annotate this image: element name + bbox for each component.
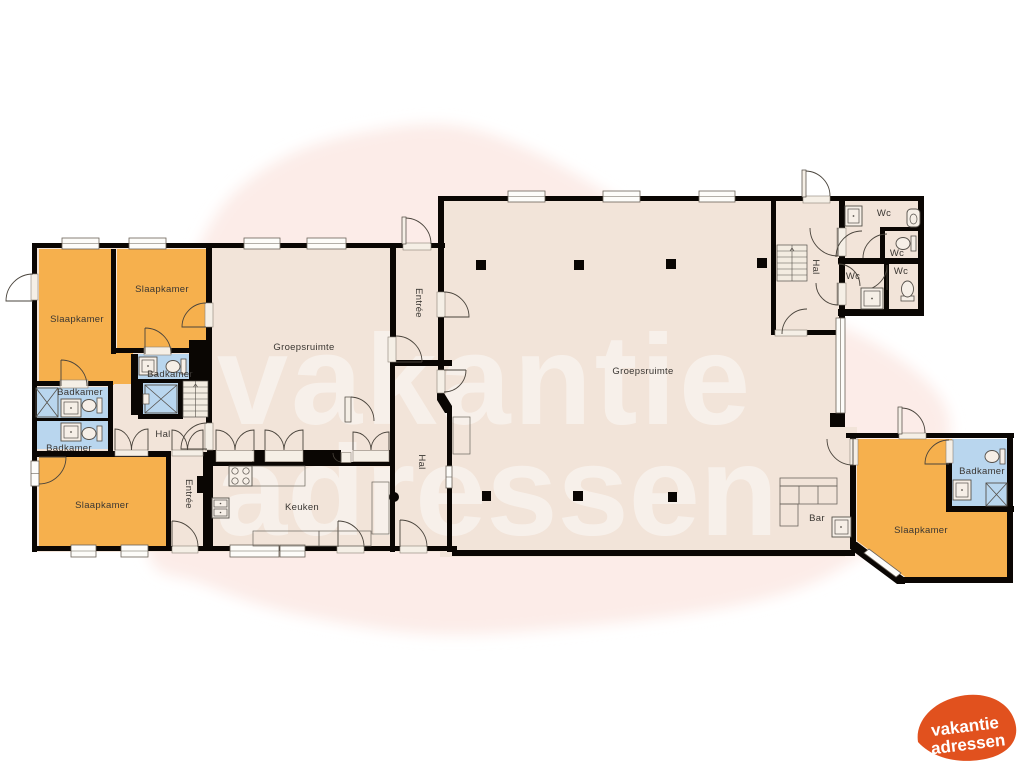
svg-text:Wc: Wc [846,271,860,282]
svg-text:Badkamer: Badkamer [57,387,103,398]
svg-text:Slaapkamer: Slaapkamer [135,284,189,295]
svg-text:Badkamer: Badkamer [46,443,92,454]
svg-text:Bar: Bar [809,513,825,524]
svg-text:Entrée: Entrée [413,288,424,318]
svg-text:Wc: Wc [894,266,908,277]
svg-text:Badkamer: Badkamer [959,466,1005,477]
svg-text:Keuken: Keuken [285,502,319,513]
svg-text:Wc: Wc [877,208,891,219]
svg-text:Slaapkamer: Slaapkamer [75,500,129,511]
svg-text:Hal: Hal [155,429,170,440]
svg-text:Badkamer: Badkamer [147,369,193,380]
svg-text:Hal: Hal [416,454,427,469]
svg-text:Entrée: Entrée [183,479,194,509]
svg-text:Groepsruimte: Groepsruimte [273,342,334,353]
svg-text:Slaapkamer: Slaapkamer [50,314,104,325]
svg-text:adressen: adressen [216,420,778,563]
svg-text:Groepsruimte: Groepsruimte [612,366,673,377]
svg-text:Slaapkamer: Slaapkamer [894,525,948,536]
svg-text:Wc: Wc [890,248,904,259]
svg-text:Hal: Hal [810,259,821,274]
